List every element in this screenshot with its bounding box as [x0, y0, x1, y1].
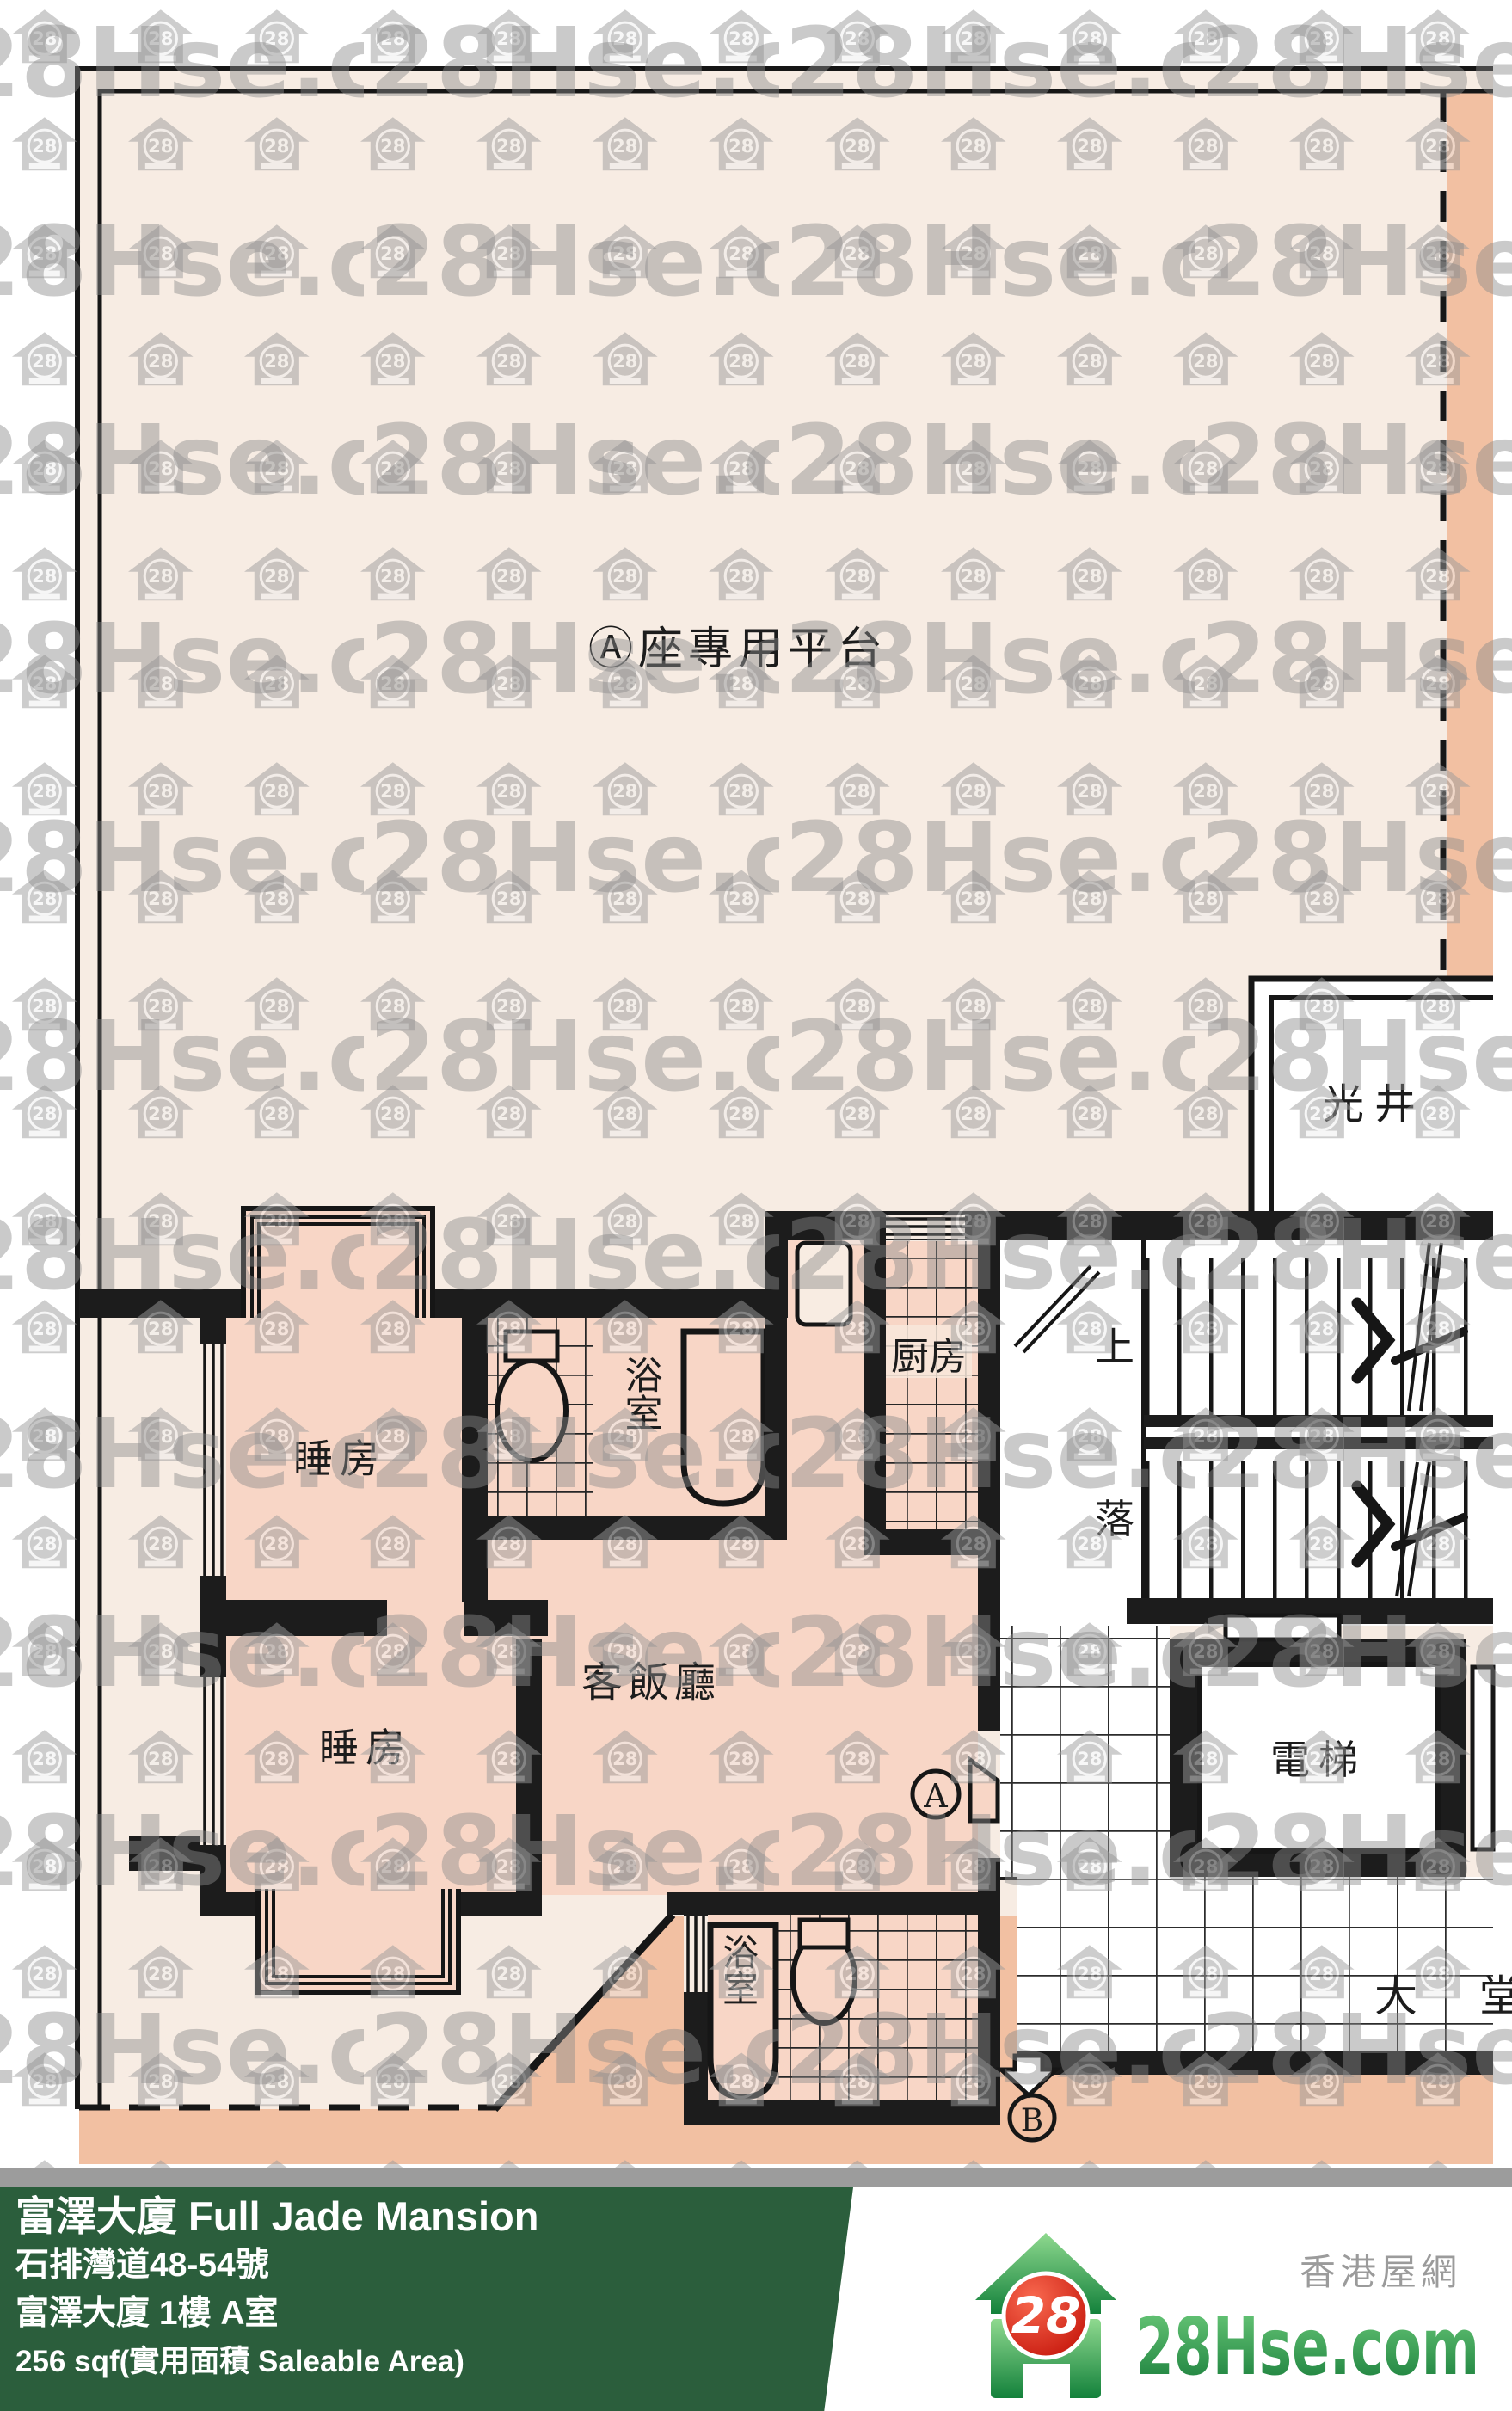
kitchen-tiles: [886, 1241, 978, 1529]
living-dining-label: 客飯廳: [581, 1658, 721, 1707]
building-area: 256 sqf(實用面積 Saleable Area): [15, 2346, 464, 2378]
light-well-label: 光井: [1323, 1080, 1426, 1129]
brand-logo: 28 28Hse.com 香港屋網: [937, 2199, 1505, 2411]
bay-window-bedroom2: [258, 1889, 458, 1992]
bay-window-bedroom1: [243, 1209, 433, 1318]
bathroom-1-label: 浴室: [618, 1356, 662, 1431]
elevator: 電梯: [1170, 1615, 1493, 1877]
building-address: 石排灣道48-54號: [15, 2248, 269, 2284]
lobby-tiles: [1017, 1877, 1493, 2053]
door-panel: [797, 1243, 851, 1325]
logo-brand-text: 28Hse.com: [1135, 2301, 1479, 2393]
stairs-down-label: 落: [1095, 1496, 1134, 1542]
bathroom-2: 浴室: [684, 1895, 978, 2125]
scan-edge-bottom: [0, 2164, 1512, 2187]
lobby-label: 大堂: [1374, 1971, 1512, 2021]
bathroom-2-label: 浴室: [717, 1934, 759, 2006]
kitchen: 厨房: [882, 1241, 978, 1529]
terrace-label: Ⓐ座專用平台: [588, 624, 888, 675]
stairs-up-label: 上: [1095, 1324, 1134, 1370]
elevator-door: [1226, 1615, 1339, 1639]
light-well: 光井: [1249, 976, 1493, 1217]
unit-a-marker: A: [923, 1777, 948, 1815]
bathtub-icon: [684, 1332, 764, 1504]
floorplan-drawing: 28 28Hse.com: [0, 0, 1512, 2168]
kitchen-label: 厨房: [891, 1335, 967, 1379]
unit-b-marker: B: [1021, 2103, 1043, 2138]
toilet-icon: [497, 1361, 566, 1461]
logo-badge: 28: [1011, 2286, 1081, 2345]
building-title: 富澤大廈 Full Jade Mansion: [15, 2195, 538, 2237]
stairs-upper-flight: [1144, 1258, 1493, 1415]
building-unit: 富澤大廈 1樓 A室: [15, 2297, 279, 2332]
outside-strip-right: [1447, 89, 1493, 976]
window-bedroom1-left: [200, 1344, 226, 1576]
floorplan-page: 28 28Hse.com: [0, 0, 1512, 2411]
bedroom-1-label: 睡房: [293, 1436, 386, 1482]
logo-tagline: 香港屋網: [1300, 2251, 1461, 2293]
logo-house-icon: 28: [975, 2233, 1116, 2398]
bedroom-2-label: 睡房: [319, 1725, 412, 1771]
stair-core: 上 落: [1000, 1240, 1493, 1626]
elevator-label: 電梯: [1270, 1737, 1367, 1783]
window-bedroom2-left: [200, 1677, 226, 1845]
window-kitchen-top: [886, 1215, 965, 1239]
